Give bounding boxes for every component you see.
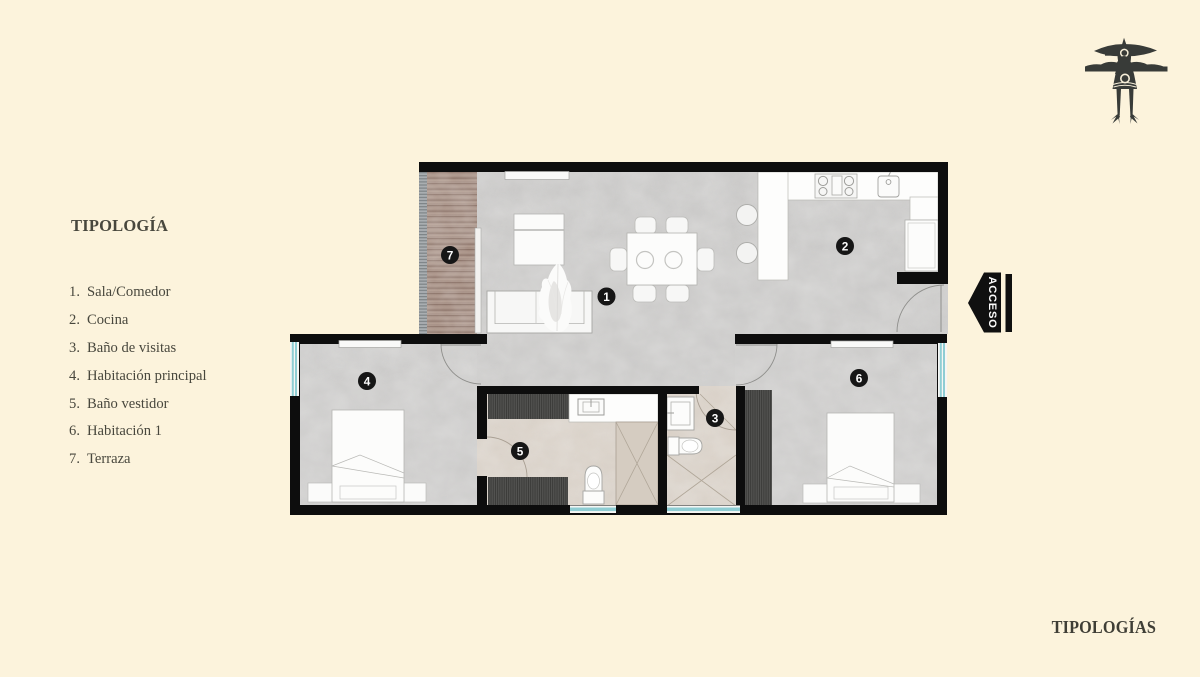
svg-text:2: 2 (842, 240, 849, 254)
svg-text:5: 5 (517, 445, 524, 459)
svg-text:1: 1 (603, 290, 610, 304)
svg-text:4: 4 (364, 375, 371, 389)
svg-text:3: 3 (712, 412, 719, 426)
svg-text:ACCESO: ACCESO (986, 276, 998, 328)
svg-text:6: 6 (856, 372, 863, 386)
svg-text:7: 7 (447, 249, 454, 263)
